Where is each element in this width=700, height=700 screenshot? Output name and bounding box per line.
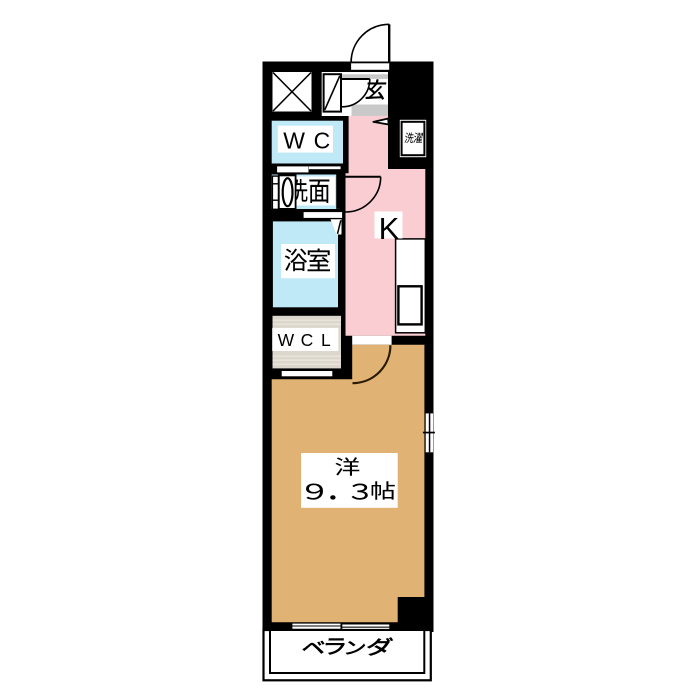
svg-text:W: W bbox=[278, 330, 295, 350]
svg-text:C: C bbox=[314, 127, 331, 153]
svg-text:L: L bbox=[321, 330, 331, 350]
svg-text:C: C bbox=[301, 330, 314, 350]
svg-text:K: K bbox=[379, 211, 400, 246]
svg-text:W: W bbox=[283, 127, 305, 153]
